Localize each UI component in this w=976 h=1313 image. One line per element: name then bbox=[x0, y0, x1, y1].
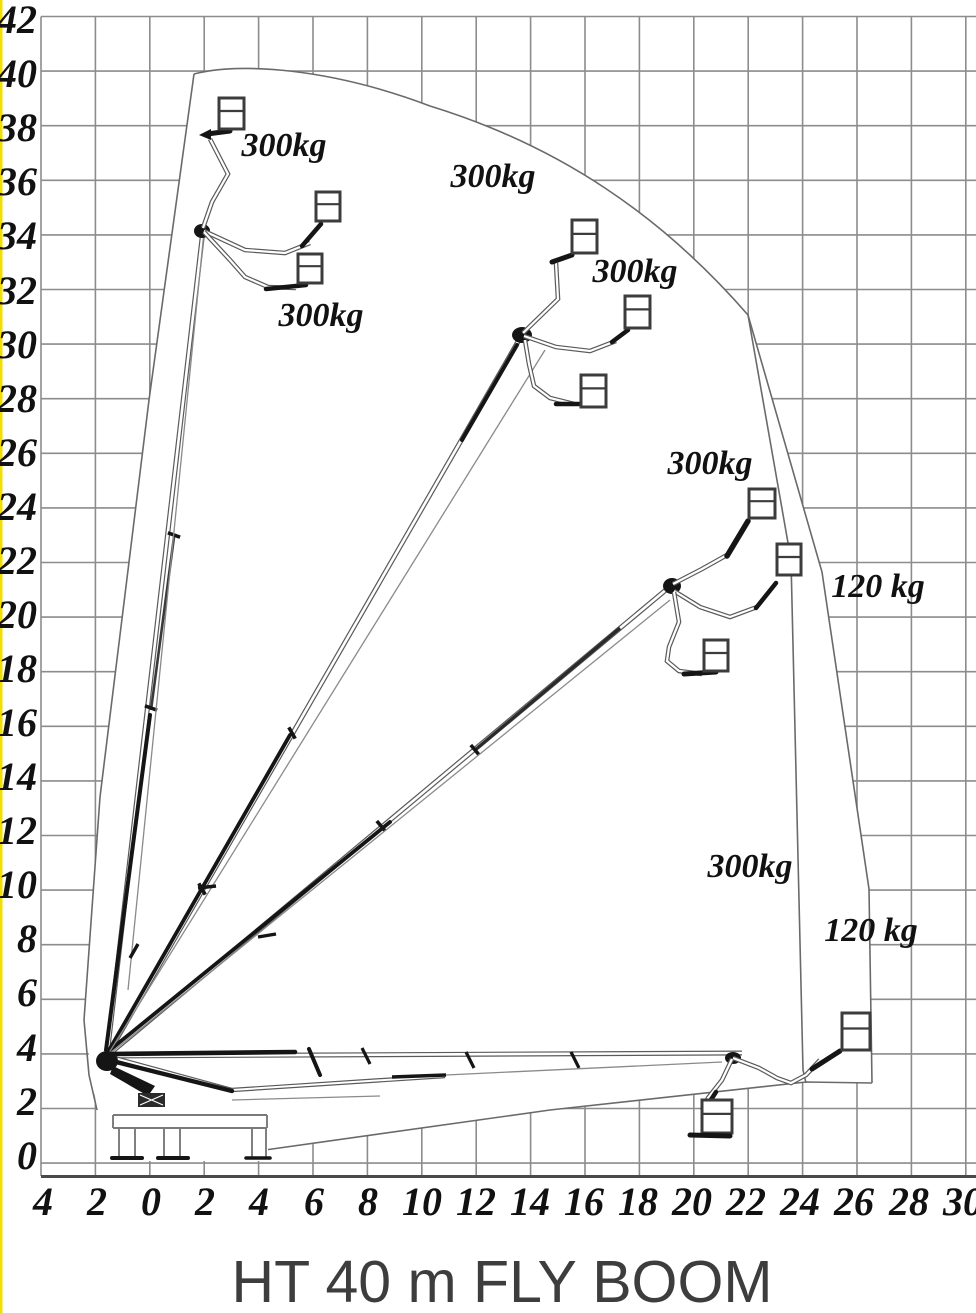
svg-text:32: 32 bbox=[0, 268, 37, 313]
svg-text:12: 12 bbox=[0, 808, 37, 853]
svg-text:2: 2 bbox=[16, 1079, 37, 1124]
svg-text:16: 16 bbox=[0, 700, 37, 745]
svg-text:0: 0 bbox=[141, 1179, 161, 1224]
svg-text:16: 16 bbox=[564, 1179, 604, 1224]
svg-text:2: 2 bbox=[86, 1179, 107, 1224]
svg-text:6: 6 bbox=[304, 1179, 324, 1224]
svg-text:4: 4 bbox=[248, 1179, 269, 1224]
svg-text:300kg: 300kg bbox=[592, 253, 678, 290]
svg-text:8: 8 bbox=[17, 916, 37, 961]
svg-text:20: 20 bbox=[671, 1179, 712, 1224]
svg-text:4: 4 bbox=[16, 1025, 37, 1070]
svg-text:22: 22 bbox=[0, 538, 37, 583]
svg-text:18: 18 bbox=[0, 646, 37, 691]
svg-text:12: 12 bbox=[456, 1179, 496, 1224]
svg-text:10: 10 bbox=[0, 862, 37, 907]
svg-text:120 kg: 120 kg bbox=[831, 568, 925, 605]
svg-text:34: 34 bbox=[0, 213, 37, 258]
svg-text:30: 30 bbox=[942, 1179, 976, 1224]
svg-text:0: 0 bbox=[17, 1133, 37, 1178]
svg-text:26: 26 bbox=[0, 430, 37, 475]
svg-text:36: 36 bbox=[0, 159, 37, 204]
svg-text:300kg: 300kg bbox=[241, 127, 327, 164]
svg-text:40: 40 bbox=[0, 51, 37, 96]
svg-text:300kg: 300kg bbox=[667, 445, 753, 482]
svg-text:22: 22 bbox=[725, 1179, 766, 1224]
svg-text:24: 24 bbox=[779, 1179, 820, 1224]
svg-text:42: 42 bbox=[0, 0, 37, 42]
svg-text:18: 18 bbox=[618, 1179, 658, 1224]
svg-text:14: 14 bbox=[0, 754, 37, 799]
svg-text:24: 24 bbox=[0, 484, 37, 529]
svg-text:4: 4 bbox=[32, 1179, 53, 1224]
svg-text:6: 6 bbox=[17, 970, 37, 1015]
svg-text:10: 10 bbox=[402, 1179, 442, 1224]
svg-text:8: 8 bbox=[358, 1179, 378, 1224]
svg-text:HT 40 m FLY BOOM: HT 40 m FLY BOOM bbox=[232, 1249, 773, 1313]
svg-text:20: 20 bbox=[0, 592, 37, 637]
svg-text:2: 2 bbox=[194, 1179, 215, 1224]
svg-text:38: 38 bbox=[0, 105, 37, 150]
svg-text:28: 28 bbox=[888, 1179, 929, 1224]
svg-text:30: 30 bbox=[0, 322, 37, 367]
svg-text:300kg: 300kg bbox=[707, 848, 793, 885]
svg-text:300kg: 300kg bbox=[278, 297, 364, 334]
svg-text:120 kg: 120 kg bbox=[824, 912, 918, 949]
svg-text:28: 28 bbox=[0, 376, 37, 421]
svg-text:14: 14 bbox=[510, 1179, 550, 1224]
svg-text:300kg: 300kg bbox=[450, 158, 536, 195]
svg-text:26: 26 bbox=[833, 1179, 874, 1224]
